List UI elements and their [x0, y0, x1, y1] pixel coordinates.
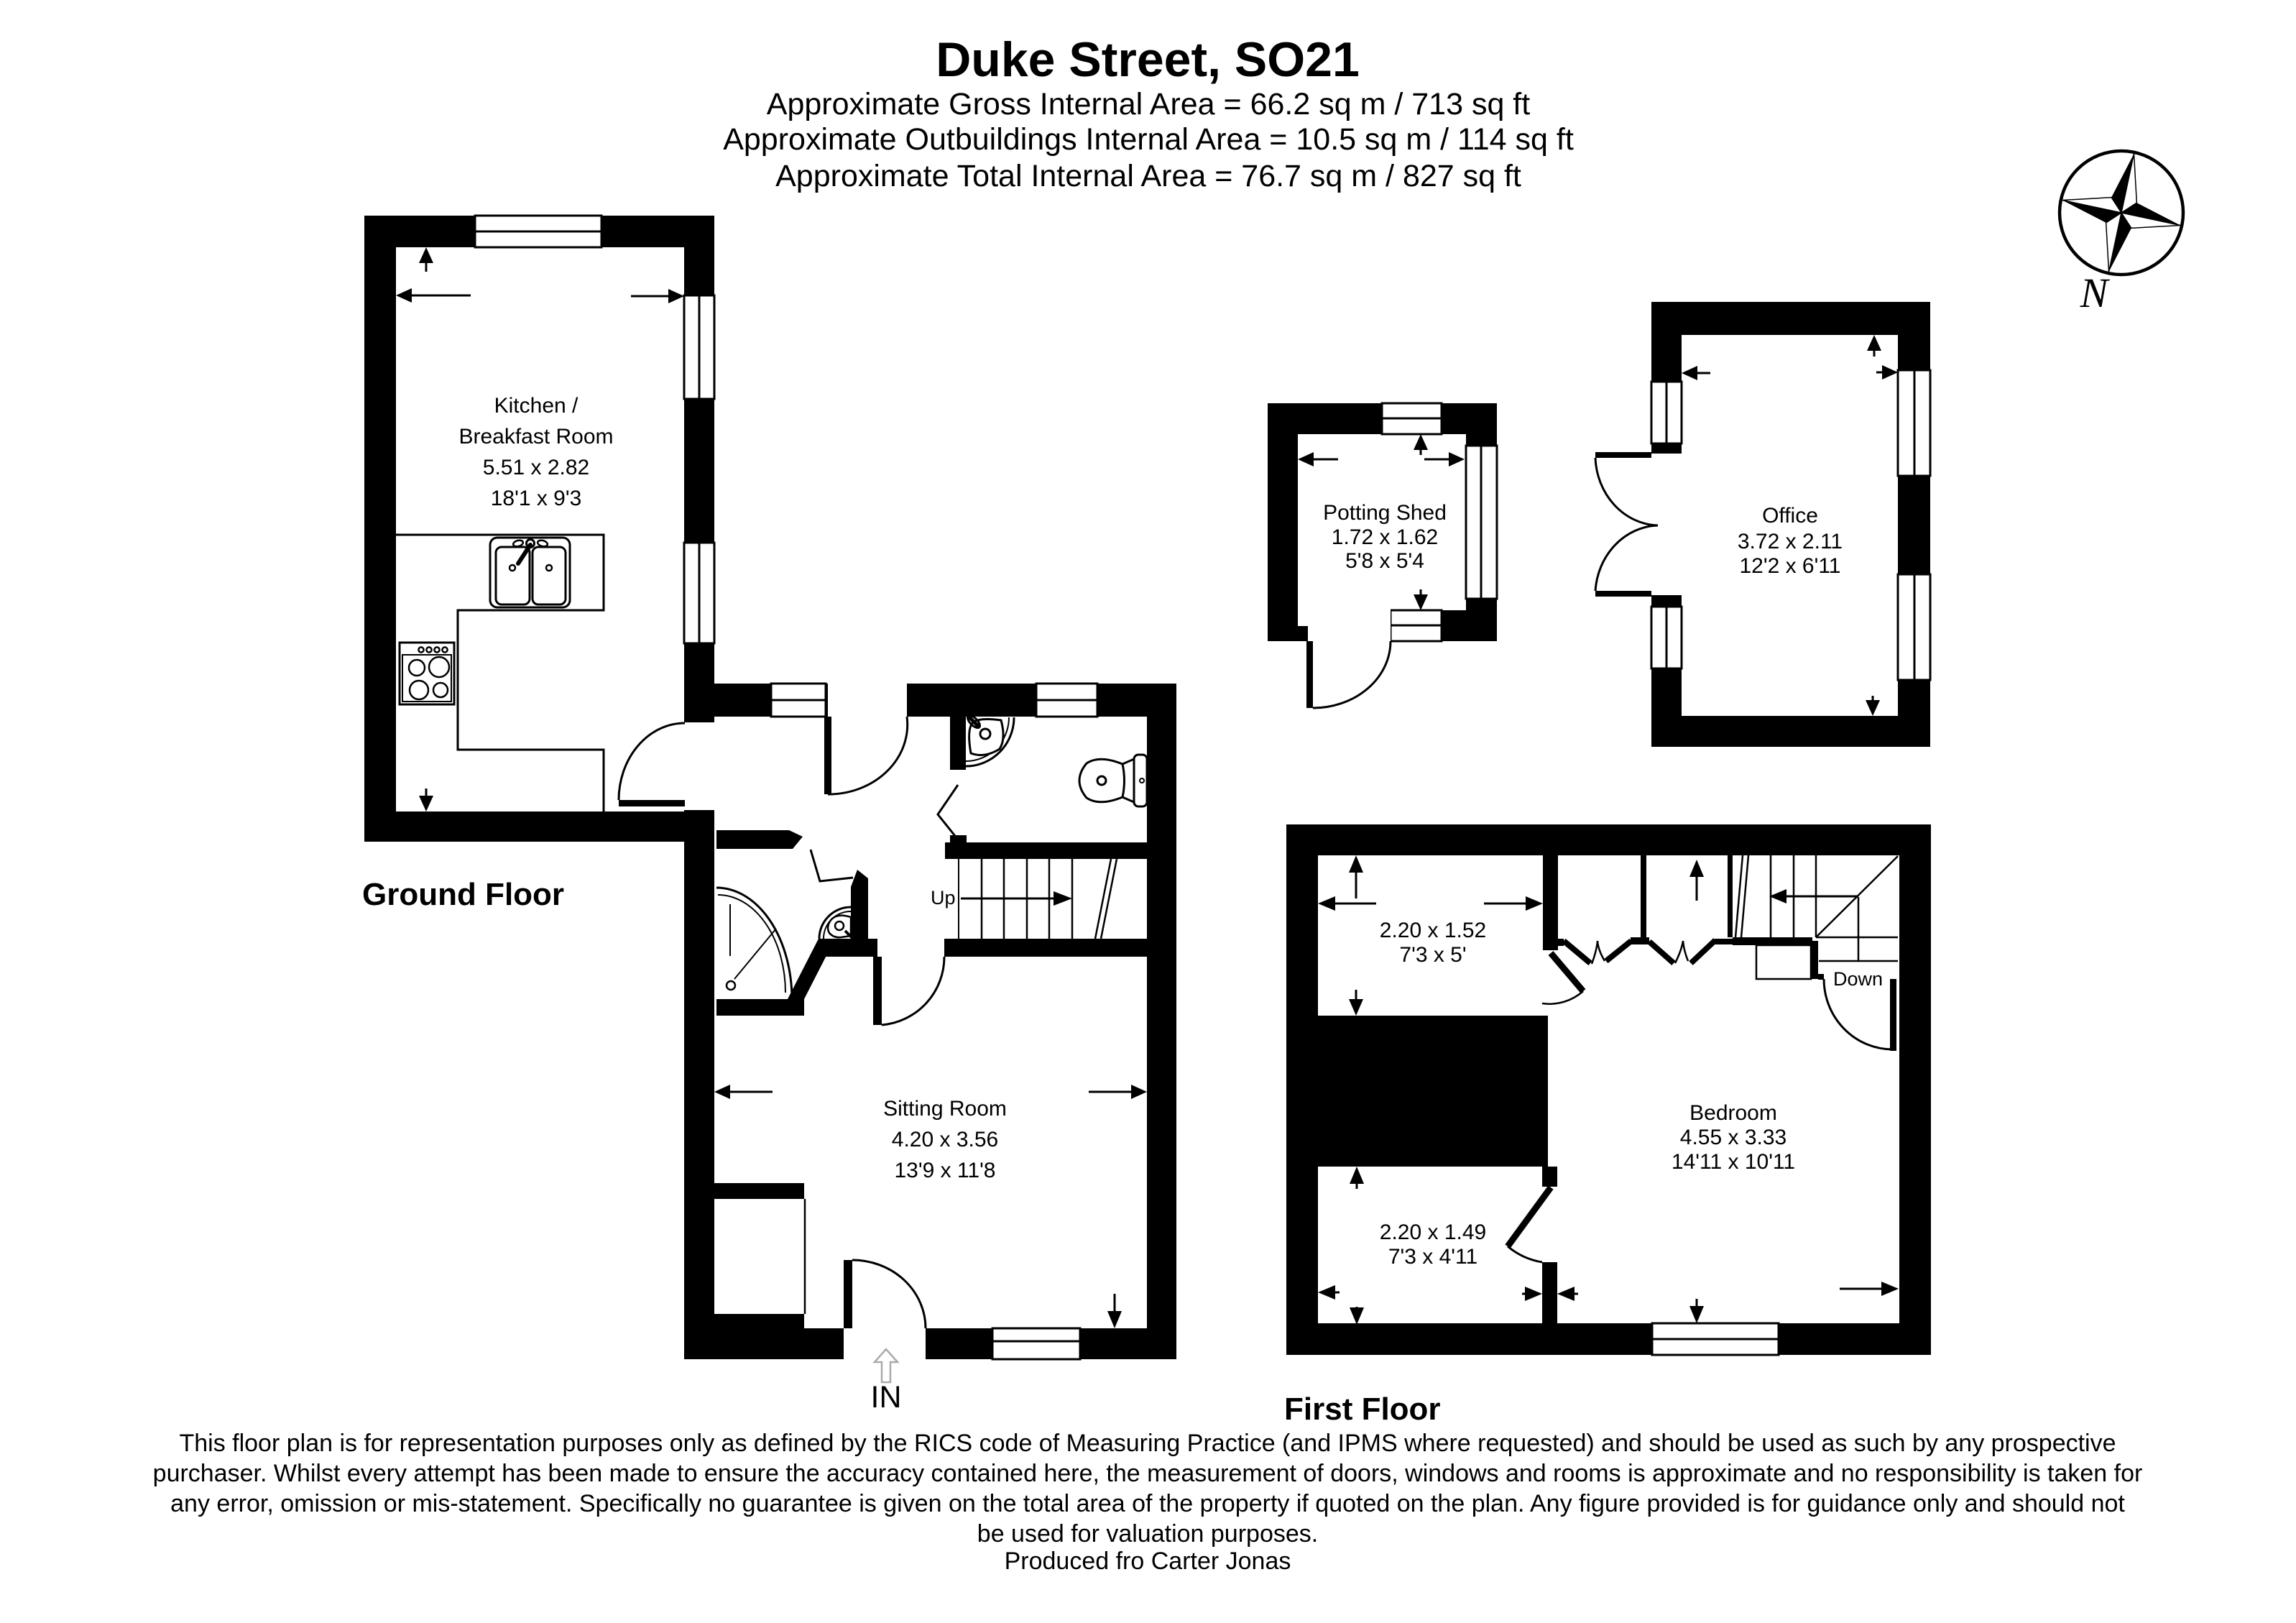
- svg-text:4.20 x 3.56: 4.20 x 3.56: [892, 1128, 998, 1151]
- svg-text:Kitchen /: Kitchen /: [494, 394, 578, 418]
- svg-text:This floor plan is for represe: This floor plan is for representation pu…: [179, 1430, 2116, 1457]
- svg-text:1.72 x 1.62: 1.72 x 1.62: [1332, 525, 1438, 549]
- svg-text:Duke Street, SO21: Duke Street, SO21: [936, 32, 1360, 87]
- svg-text:Approximate Gross Internal Are: Approximate Gross Internal Area = 66.2 s…: [767, 87, 1530, 121]
- svg-text:purchaser. Whilst every attemp: purchaser. Whilst every attempt has been…: [153, 1460, 2143, 1487]
- svg-text:5'8 x 5'4: 5'8 x 5'4: [1345, 549, 1424, 573]
- svg-text:14'11 x 10'11: 14'11 x 10'11: [1672, 1150, 1795, 1174]
- svg-text:Up: Up: [931, 887, 956, 909]
- svg-text:First Floor: First Floor: [1284, 1392, 1441, 1427]
- svg-text:Bedroom: Bedroom: [1689, 1101, 1777, 1125]
- svg-text:Potting Shed: Potting Shed: [1323, 501, 1447, 525]
- svg-text:Sitting Room: Sitting Room: [883, 1097, 1007, 1121]
- svg-text:3.72 x 2.11: 3.72 x 2.11: [1738, 530, 1843, 553]
- svg-text:12'2 x 6'11: 12'2 x 6'11: [1739, 554, 1840, 578]
- svg-text:Down: Down: [1833, 968, 1883, 990]
- svg-text:be used for valuation purposes: be used for valuation purposes.: [977, 1520, 1318, 1548]
- svg-text:Ground Floor: Ground Floor: [362, 877, 564, 912]
- svg-text:Office: Office: [1762, 504, 1818, 528]
- svg-text:7'3 x 4'11: 7'3 x 4'11: [1388, 1245, 1477, 1269]
- svg-text:2.20 x 1.49: 2.20 x 1.49: [1380, 1220, 1486, 1244]
- svg-text:5.51 x 2.82: 5.51 x 2.82: [483, 456, 589, 479]
- svg-text:Produced fro Carter Jonas: Produced fro Carter Jonas: [1005, 1548, 1291, 1575]
- svg-text:Breakfast Room: Breakfast Room: [458, 425, 613, 449]
- svg-text:Approximate Outbuildings Inter: Approximate Outbuildings Internal Area =…: [723, 122, 1574, 157]
- svg-text:2.20 x 1.52: 2.20 x 1.52: [1380, 919, 1486, 942]
- svg-text:any error, omission or mis-sta: any error, omission or mis-statement. Sp…: [170, 1490, 2125, 1517]
- svg-text:13'9 x 11'8: 13'9 x 11'8: [894, 1159, 995, 1182]
- svg-text:N: N: [2080, 270, 2111, 316]
- svg-text:Approximate Total Internal Are: Approximate Total Internal Area = 76.7 s…: [775, 159, 1521, 193]
- svg-text:18'1 x 9'3: 18'1 x 9'3: [491, 487, 582, 510]
- svg-text:IN: IN: [871, 1380, 902, 1415]
- svg-text:4.55 x 3.33: 4.55 x 3.33: [1680, 1126, 1786, 1149]
- svg-text:7'3 x 5': 7'3 x 5': [1399, 943, 1466, 967]
